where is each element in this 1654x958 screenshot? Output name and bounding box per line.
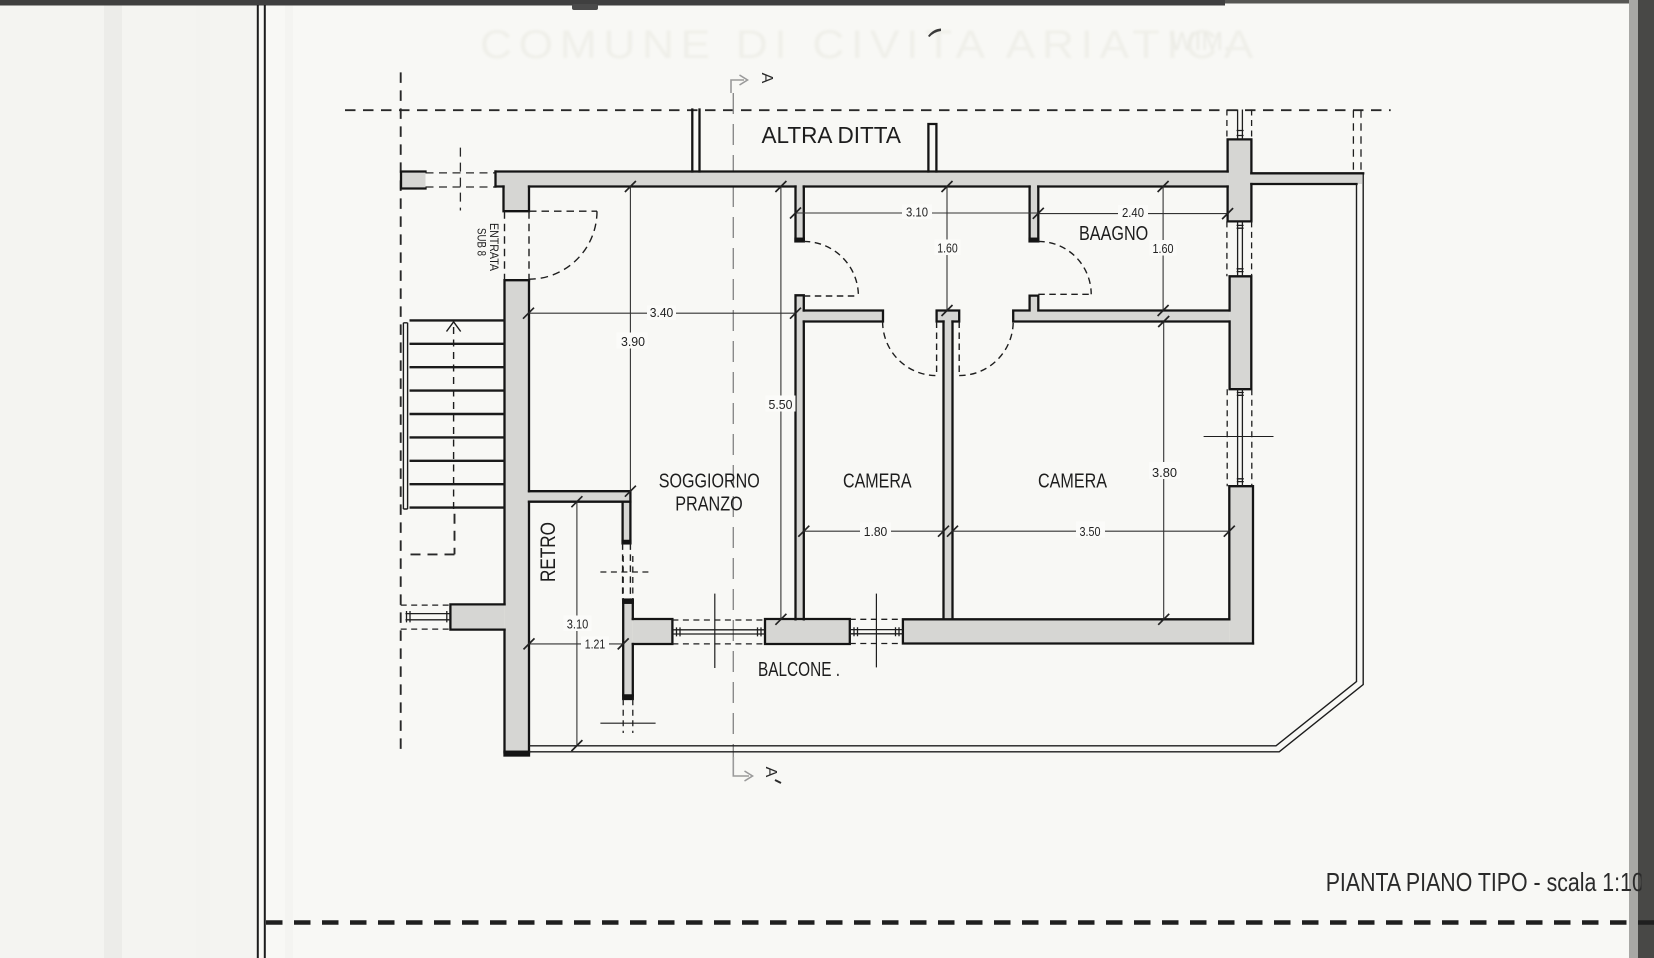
svg-text:RETRO: RETRO bbox=[536, 522, 560, 582]
svg-text:BAAGNO: BAAGNO bbox=[1079, 222, 1148, 245]
svg-text:3.50: 3.50 bbox=[1080, 524, 1101, 539]
svg-text:A: A bbox=[762, 767, 779, 778]
svg-text:PRANZO: PRANZO bbox=[675, 493, 743, 516]
svg-text:3.80: 3.80 bbox=[1152, 465, 1177, 480]
svg-text:3.90: 3.90 bbox=[621, 334, 645, 349]
svg-text:1.60: 1.60 bbox=[937, 241, 958, 256]
svg-text:COMUNE DI CIVITA ARIATICA: COMUNE DI CIVITA ARIATICA bbox=[480, 23, 1260, 67]
svg-text:3.10: 3.10 bbox=[906, 205, 928, 220]
svg-text:1.60: 1.60 bbox=[1153, 241, 1174, 256]
svg-text:SOGGIORNO: SOGGIORNO bbox=[659, 470, 760, 493]
svg-text:3.10: 3.10 bbox=[567, 616, 589, 631]
svg-text:PIANTA PIANO TIPO - scala 1:10: PIANTA PIANO TIPO - scala 1:100 bbox=[1326, 867, 1654, 897]
svg-text:WIM.: WIM. bbox=[1170, 26, 1231, 56]
svg-text:5.50: 5.50 bbox=[769, 397, 793, 412]
svg-text:A: A bbox=[758, 73, 775, 84]
svg-text:BALCONE .: BALCONE . bbox=[758, 658, 840, 681]
svg-text:CAMERA: CAMERA bbox=[843, 470, 912, 493]
svg-text:ALTRA DITTA: ALTRA DITTA bbox=[761, 122, 901, 148]
svg-text:SUB 8: SUB 8 bbox=[475, 228, 489, 256]
svg-text:3.40: 3.40 bbox=[650, 305, 674, 320]
svg-text:CAMERA: CAMERA bbox=[1038, 470, 1107, 493]
svg-text:1.21: 1.21 bbox=[585, 636, 606, 651]
svg-text:2.40: 2.40 bbox=[1122, 205, 1144, 220]
svg-text:1.80: 1.80 bbox=[864, 524, 888, 539]
